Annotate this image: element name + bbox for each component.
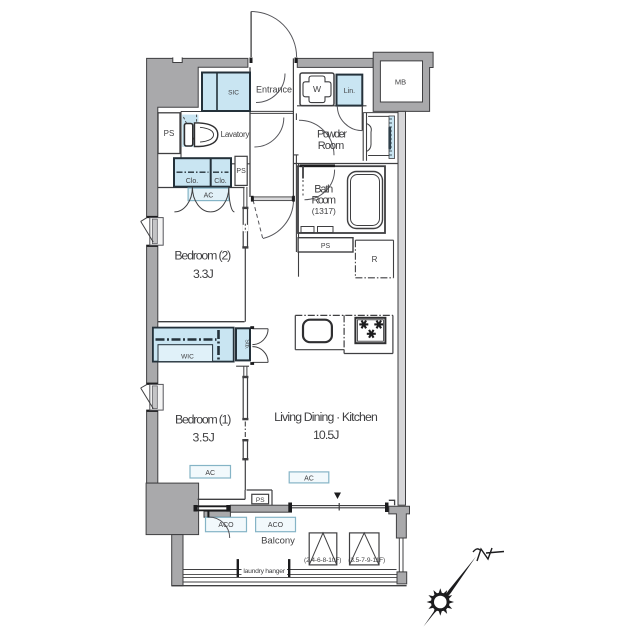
svg-text:PS: PS [256,497,265,504]
svg-text:PS: PS [321,243,331,250]
svg-text:Clo.: Clo. [214,178,227,185]
svg-text:(3.5-7-9-11F): (3.5-7-9-11F) [348,557,385,564]
svg-text:Entrance: Entrance [256,84,292,94]
svg-text:(1317): (1317) [312,206,336,216]
svg-text:AC: AC [204,192,214,199]
svg-text:W: W [313,84,321,94]
svg-text:AC: AC [304,475,314,482]
svg-text:Stb.: Stb. [244,339,250,349]
svg-text:WIC: WIC [181,354,194,361]
svg-text:R: R [372,255,378,264]
svg-text:PS: PS [164,129,175,138]
svg-text:Living Dining · Kitchen: Living Dining · Kitchen [274,410,378,424]
svg-text:ACO: ACO [218,522,234,529]
svg-text:Balcony: Balcony [261,535,295,546]
svg-text:Powder: Powder [317,129,347,141]
svg-text:3.5J: 3.5J [192,431,214,445]
svg-text:AC: AC [205,470,215,477]
svg-text:ACO: ACO [268,522,284,529]
svg-text:laundry hanger: laundry hanger [243,568,285,575]
svg-text:3.3J: 3.3J [193,267,214,281]
svg-text:Bedroom (1): Bedroom (1) [175,412,231,426]
svg-text:PS: PS [236,168,246,175]
svg-text:10.5J: 10.5J [313,428,339,442]
svg-text:Bedroom (2): Bedroom (2) [174,248,231,262]
svg-text:Lavatory: Lavatory [221,130,250,139]
svg-text:Room: Room [318,140,345,152]
svg-text:SIC: SIC [228,90,239,97]
svg-text:(2.4-6-8-10F): (2.4-6-8-10F) [304,557,341,564]
svg-text:Clo.: Clo. [186,178,199,185]
svg-text:MB: MB [395,78,406,87]
svg-text:Lin.: Lin. [344,88,355,95]
